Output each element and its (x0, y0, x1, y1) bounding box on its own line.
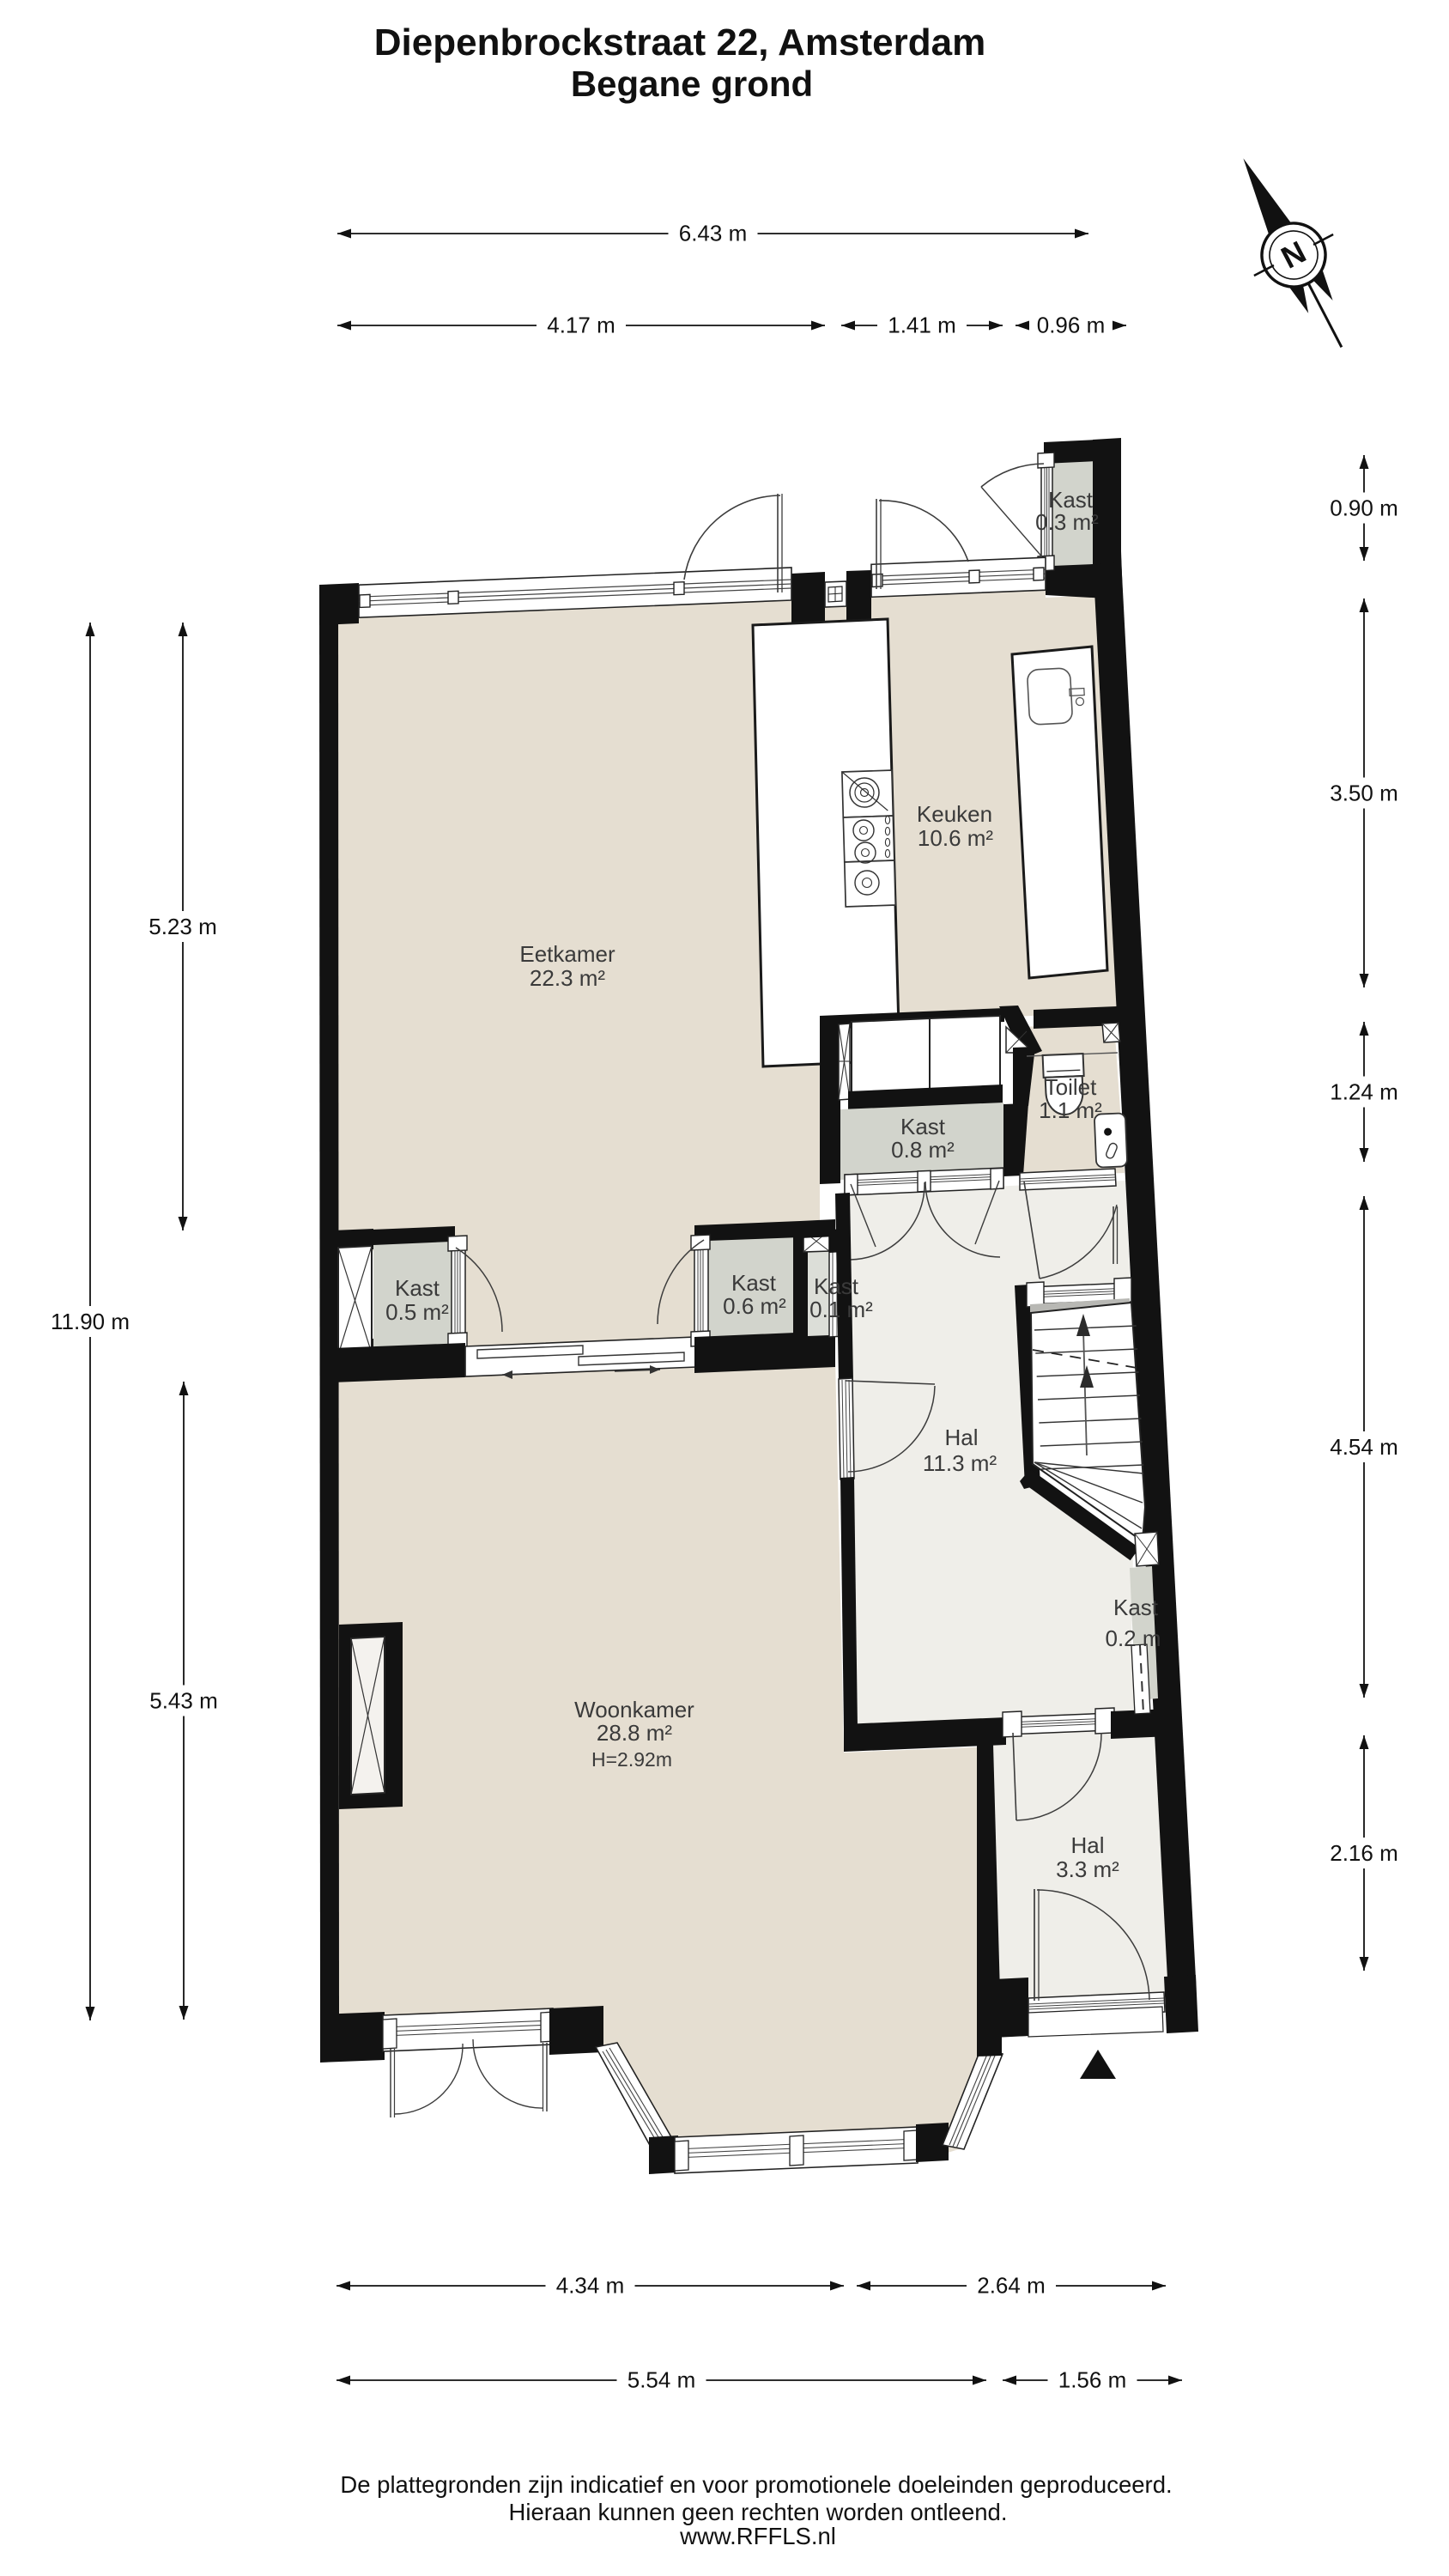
svg-text:Kast: Kast (395, 1275, 440, 1301)
svg-text:Hal: Hal (1070, 1832, 1104, 1858)
svg-text:0.96 m: 0.96 m (1037, 313, 1106, 338)
svg-text:Eetkamer: Eetkamer (519, 941, 615, 967)
svg-text:5.54 m: 5.54 m (627, 2367, 696, 2393)
svg-text:0.1 m²: 0.1 m² (809, 1297, 873, 1322)
svg-text:Kast: Kast (731, 1270, 777, 1296)
svg-text:5.23 m: 5.23 m (149, 914, 217, 939)
svg-text:Kast: Kast (1113, 1595, 1159, 1620)
svg-text:1.24 m: 1.24 m (1330, 1079, 1398, 1105)
svg-text:Kast: Kast (900, 1114, 946, 1139)
svg-text:0.6 m²: 0.6 m² (723, 1293, 786, 1319)
svg-text:6.43 m: 6.43 m (679, 221, 748, 246)
svg-text:www.RFFLS.nl: www.RFFLS.nl (679, 2523, 836, 2549)
svg-text:10.6 m²: 10.6 m² (918, 825, 993, 851)
svg-text:3.3 m²: 3.3 m² (1056, 1856, 1119, 1882)
svg-text:4.54 m: 4.54 m (1330, 1434, 1398, 1460)
svg-text:Diepenbrockstraat 22, Amsterda: Diepenbrockstraat 22, Amsterdam (374, 21, 985, 64)
svg-text:Woonkamer: Woonkamer (574, 1697, 694, 1722)
svg-text:4.17 m: 4.17 m (547, 313, 615, 338)
svg-text:4.34 m: 4.34 m (556, 2273, 625, 2299)
svg-text:1.1 m²: 1.1 m² (1039, 1097, 1102, 1123)
svg-text:1.56 m: 1.56 m (1058, 2367, 1127, 2393)
svg-text:1.41 m: 1.41 m (888, 313, 956, 338)
svg-text:28.8 m²: 28.8 m² (597, 1720, 672, 1746)
svg-text:0.2 m: 0.2 m (1105, 1625, 1161, 1651)
svg-text:11.90 m: 11.90 m (51, 1309, 130, 1334)
svg-text:3.50 m: 3.50 m (1330, 781, 1398, 806)
svg-text:0.8 m²: 0.8 m² (891, 1137, 955, 1163)
svg-text:Hieraan kunnen geen rechten wo: Hieraan kunnen geen rechten worden ontle… (509, 2499, 1008, 2525)
svg-text:De plattegronden zijn indicati: De plattegronden zijn indicatief en voor… (340, 2471, 1172, 2498)
svg-text:Toilet: Toilet (1045, 1074, 1097, 1100)
svg-text:Hal: Hal (944, 1425, 978, 1450)
svg-text:Begane grond: Begane grond (571, 64, 813, 104)
svg-text:0.3 m²: 0.3 m² (1035, 509, 1099, 535)
svg-text:5.43 m: 5.43 m (149, 1688, 218, 1714)
svg-text:Kast: Kast (814, 1273, 859, 1299)
svg-text:11.3 m²: 11.3 m² (923, 1450, 997, 1476)
svg-text:Keuken: Keuken (917, 801, 992, 827)
svg-text:0.5 m²: 0.5 m² (385, 1299, 449, 1325)
svg-text:H=2.92m: H=2.92m (591, 1748, 672, 1771)
svg-text:0.90 m: 0.90 m (1330, 495, 1398, 521)
svg-text:2.64 m: 2.64 m (977, 2273, 1046, 2299)
svg-text:22.3 m²: 22.3 m² (530, 965, 605, 991)
svg-text:2.16 m: 2.16 m (1330, 1840, 1398, 1866)
